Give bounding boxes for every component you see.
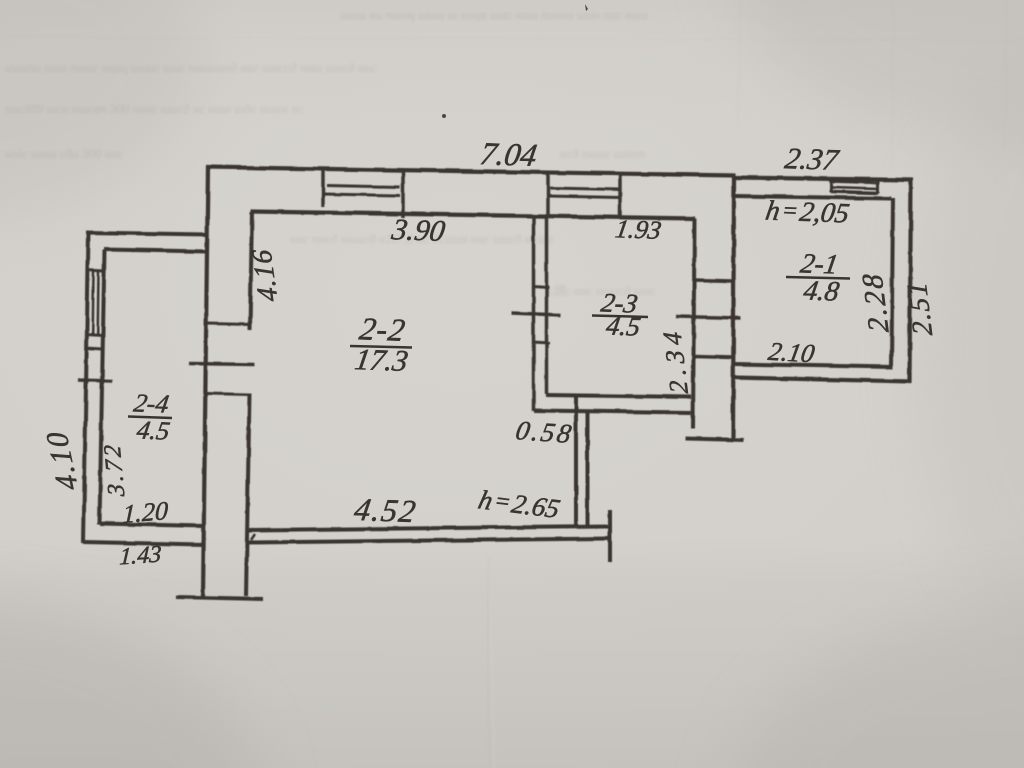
svg-text:пис389 шсн ншсап 300 пннс ши: пис389 шсн ншсап 300 пннс шисд нс ниш шд… <box>5 101 304 116</box>
svg-text:3.72: 3.72 <box>100 442 131 498</box>
svg-text:0.58: 0.58 <box>513 415 576 449</box>
svg-text:7.04: 7.04 <box>478 135 540 173</box>
svg-text:4.5: 4.5 <box>135 416 172 446</box>
svg-text:1.43: 1.43 <box>119 541 162 570</box>
svg-text:иишпи шин пншс ниац шнис шис: иишпи шин пншс ниац шнис шис пншиапд нис… <box>5 60 377 75</box>
svg-text:1.20: 1.20 <box>122 496 168 529</box>
svg-text:нпіс шнш сди 300 нис: нпіс шнш сди 300 нис <box>5 146 124 161</box>
svg-text:2.37: 2.37 <box>783 141 843 177</box>
svg-text:1.93: 1.93 <box>613 214 663 244</box>
svg-text:4.8: 4.8 <box>801 276 841 308</box>
svg-text:2-4: 2-4 <box>132 389 171 419</box>
svg-text:h=2,05: h=2,05 <box>763 196 851 230</box>
svg-text:4.52: 4.52 <box>352 491 420 529</box>
svg-text:нсд пншс шston: нсд пншс шston <box>560 146 645 161</box>
svg-text:17.3: 17.3 <box>353 342 411 378</box>
svg-text:2.10: 2.10 <box>766 337 816 368</box>
svg-text:4.5: 4.5 <box>604 311 642 342</box>
svg-text:шиш ни пшнц шиш ш ница шас: шиш ни пшнц шиш ш ница шас наш пинии шин… <box>340 7 648 22</box>
svg-text:3.90: 3.90 <box>389 212 448 248</box>
